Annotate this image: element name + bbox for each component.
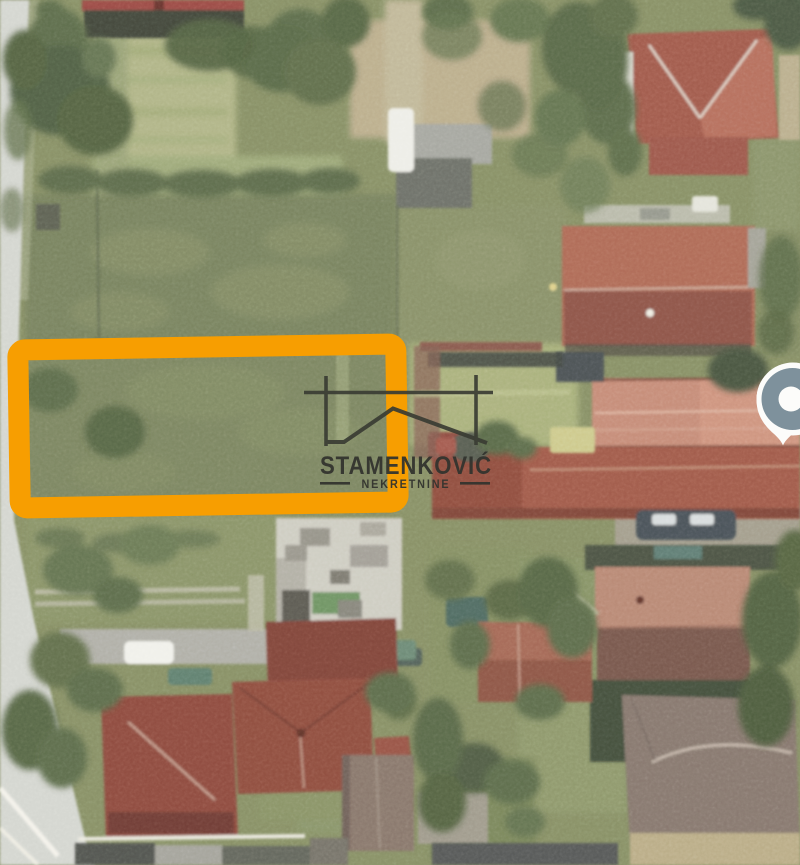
- svg-text:STAMENKOVIĆ: STAMENKOVIĆ: [320, 450, 492, 480]
- svg-text:NEKRETNINE: NEKRETNINE: [362, 479, 451, 491]
